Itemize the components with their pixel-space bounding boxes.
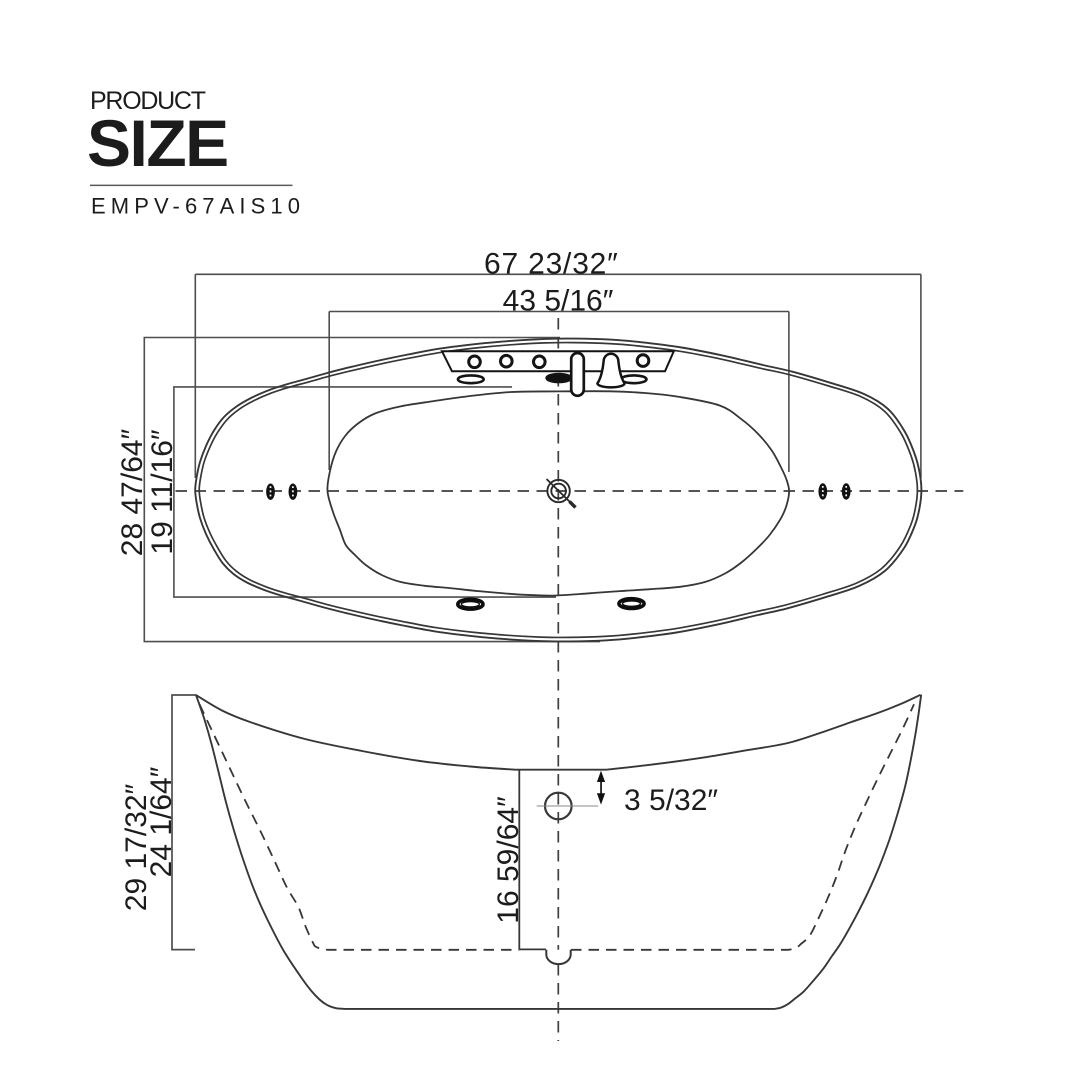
svg-text:67 23/32″: 67 23/32″	[484, 247, 619, 280]
svg-text:SIZE: SIZE	[87, 106, 228, 180]
svg-text:24 1/64″: 24 1/64″	[145, 766, 178, 877]
svg-text:43 5/16″: 43 5/16″	[503, 284, 614, 317]
svg-text:3 5/32″: 3 5/32″	[624, 784, 718, 817]
svg-text:28 47/64″: 28 47/64″	[116, 428, 149, 556]
svg-text:16 59/64″: 16 59/64″	[492, 796, 525, 924]
svg-text:EMPV-67AIS10: EMPV-67AIS10	[91, 194, 305, 219]
svg-text:19 11/16″: 19 11/16″	[146, 429, 179, 555]
